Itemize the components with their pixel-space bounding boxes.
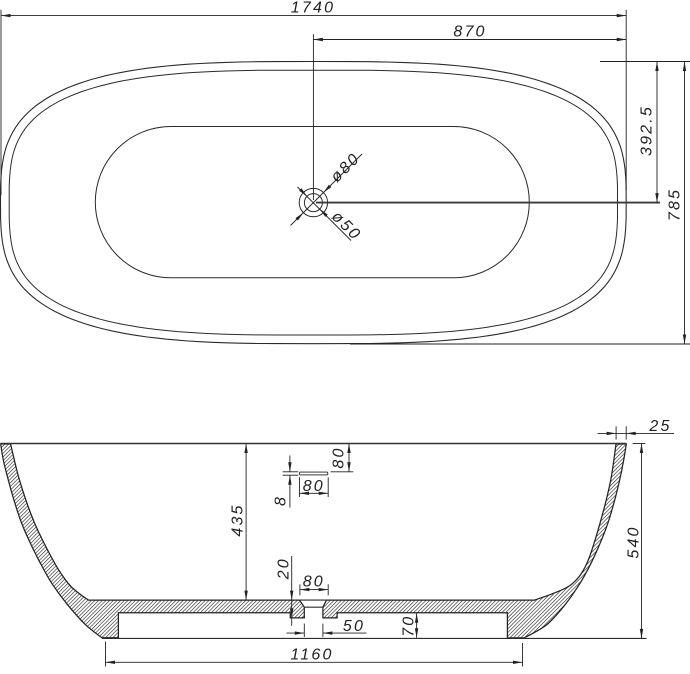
svg-text:435: 435 [230,503,247,536]
svg-text:392.5: 392.5 [639,105,656,156]
svg-text:8: 8 [273,495,290,506]
svg-text:80: 80 [331,446,348,468]
svg-text:25: 25 [648,418,671,435]
svg-text:1740: 1740 [291,0,335,17]
svg-text:50: 50 [343,618,365,635]
svg-text:80: 80 [303,574,325,591]
svg-text:540: 540 [626,525,643,558]
svg-text:20: 20 [276,557,293,580]
svg-text:70: 70 [401,615,418,637]
svg-text:870: 870 [453,23,486,40]
svg-text:785: 785 [667,188,684,221]
svg-text:80: 80 [303,478,325,495]
svg-text:1160: 1160 [290,647,333,664]
